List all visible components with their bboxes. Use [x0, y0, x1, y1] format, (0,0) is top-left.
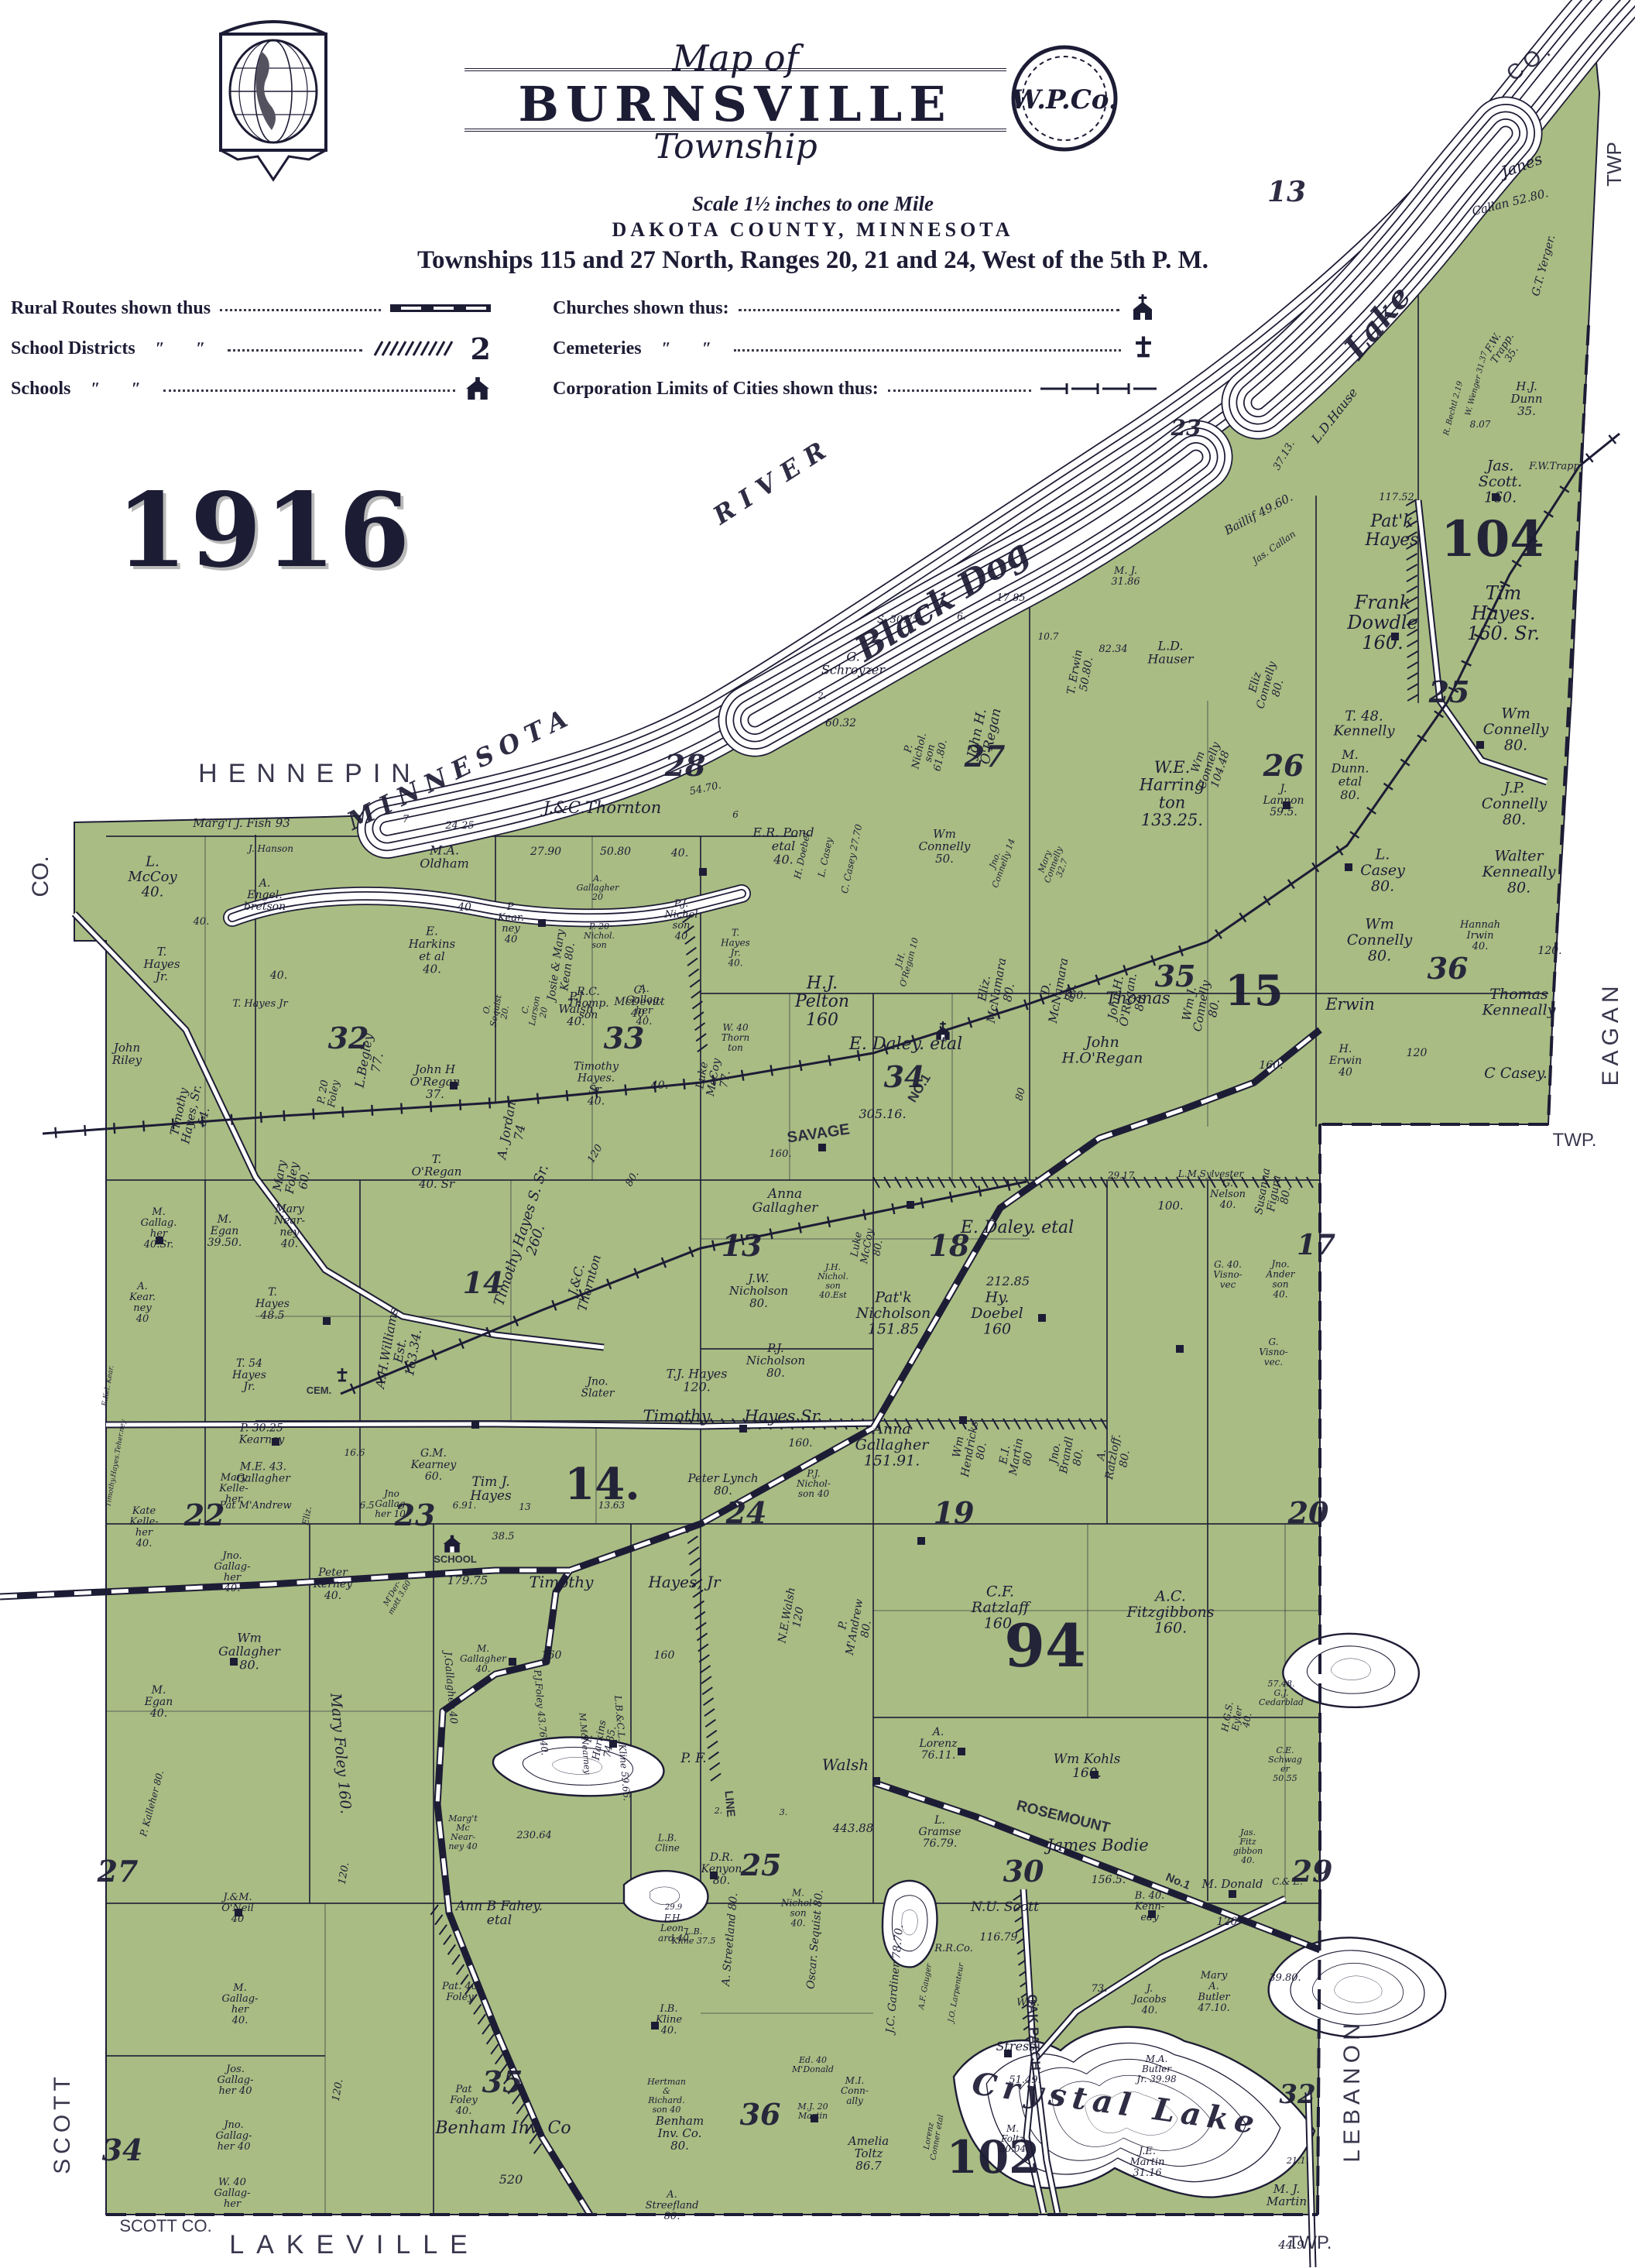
school-district-symbol: 2: [372, 331, 491, 366]
parcel-label: L.M.Sylvester: [1177, 1168, 1245, 1179]
church-symbol: [1129, 294, 1157, 322]
legend-item-cemeteries: Cemeteries ʺ ʺ: [553, 333, 1157, 364]
legend-ditto: ʺ ʺ: [91, 379, 153, 399]
water-label: RIVER: [707, 431, 838, 531]
parcel-label: 156.5.: [1092, 1874, 1126, 1886]
map-year: 1916: [116, 471, 348, 591]
dist-label: 15: [1225, 966, 1283, 1015]
parcel-label: 82.34: [1099, 643, 1127, 655]
parcel-label: 117.52: [1379, 492, 1414, 503]
parcel-label: N.U. Scott: [970, 1899, 1039, 1915]
title-banner: Map of BURNSVILLE Township: [464, 31, 1006, 163]
legend-label: School Districts: [11, 338, 135, 359]
parcel-label: 520: [499, 2172, 523, 2187]
legend-item-corporation-limits: Corporation Limits of Cities shown thus:: [553, 373, 1157, 404]
parcel-label: 40.: [670, 847, 688, 860]
parcel-label: C.& E.: [1272, 1876, 1303, 1887]
parcel-label: Benham Inv. Co: [434, 2119, 571, 2138]
sec-label: 35: [482, 2064, 523, 2099]
parcel-label: 6.5: [359, 1500, 374, 1511]
parcel-label: 230.64: [516, 1830, 552, 1841]
parcel-label: J.&C.Thornton: [540, 798, 662, 817]
sec-label: 17: [1297, 1229, 1335, 1261]
school-symbol: [464, 376, 491, 402]
parcel-label: M. J.31.86: [1111, 565, 1140, 588]
parcel-label: 51.49.: [1009, 2074, 1040, 2086]
parcel-label: 160.: [788, 1437, 812, 1450]
parcel-label: 73.: [1092, 1983, 1108, 1995]
edge-label: EAGAN: [1598, 981, 1623, 1086]
parcel-label: 50.80: [600, 846, 631, 858]
publisher-seal: W.P.Co.: [1006, 40, 1123, 156]
legend-leader: [228, 346, 362, 352]
title-map-of: Map of: [464, 37, 1006, 79]
townships-ranges-note: Townships 115 and 27 North, Ranges 20, 2…: [232, 246, 1393, 275]
parcel-label: P. F.: [680, 1751, 706, 1766]
sec-label: 27: [97, 1854, 139, 1889]
scale-note: Scale 1½ inches to one Mile: [464, 192, 1161, 216]
legend-label: Churches shown thus:: [553, 298, 729, 319]
parcel-label: Timothy: [643, 1407, 711, 1426]
parcel-label: 60.32: [825, 717, 856, 729]
sec-label: 20: [1287, 1495, 1329, 1530]
legend-label: Cemeteries: [553, 338, 642, 359]
parcel-label: Hayes, Jr: [647, 1573, 721, 1591]
legend-leader: [888, 386, 1031, 392]
parcel-label: Hayes Sr: [743, 1407, 821, 1426]
parcel-label: P. 30.25Kearney: [238, 1422, 286, 1446]
parcel-label: 2.: [817, 691, 827, 701]
parcel-label: L.B.Cline: [655, 1833, 680, 1854]
sec-label: 23: [1171, 415, 1201, 441]
parcel-label: 6.91.: [453, 1500, 477, 1511]
parcel-label: ThomasKenneally: [1482, 986, 1556, 1019]
title-township-word: Township: [464, 127, 1006, 166]
parcel-label: 8.07: [1470, 419, 1491, 430]
parcel-label: F.W.Trapp.: [1528, 461, 1583, 472]
dist-label: 102: [946, 2131, 1040, 2184]
sec-label: 25: [740, 1848, 782, 1882]
parcel-label: Pat. 40Foley: [441, 1981, 478, 2003]
parcel-label: Walsh: [822, 1755, 869, 1774]
parcel-label: 179.75: [447, 1573, 488, 1587]
parcel-label: 212.85: [985, 1274, 1030, 1288]
parcel-label: Stress: [996, 2039, 1036, 2054]
legend-item-churches: Churches shown thus:: [553, 293, 1157, 324]
seal-text: W.P.Co.: [1011, 84, 1117, 115]
parcel-label: Pat M'Andrew: [218, 1500, 291, 1511]
parcel-label: M. Donald: [1201, 1877, 1263, 1891]
parcel-label: 21.1.: [1286, 2156, 1308, 2166]
parcel-label: 6.: [957, 611, 965, 622]
parcel-label: 2.: [714, 1806, 723, 1816]
sec-label: 13: [722, 1228, 763, 1263]
parcel-label: 16.6: [344, 1447, 365, 1458]
edge-label: SCOTT CO.: [119, 2216, 211, 2235]
road-label: SCHOOL: [434, 1553, 477, 1565]
parcel-label: Marg'l J. Fish 93: [192, 816, 290, 830]
parcel-label: Marg'tMcNear-ney 40: [447, 1813, 478, 1851]
sec-label: 25: [1428, 674, 1470, 709]
edge-label: CO.: [28, 856, 53, 897]
parcel-label: 160: [541, 1649, 562, 1662]
parcel-label: 3.: [780, 1807, 788, 1817]
sec-label: 26: [1263, 748, 1304, 783]
parcel-label: 17.85.: [996, 592, 1028, 604]
legend-ditto: ʺ ʺ: [156, 338, 218, 359]
legend-item-school-districts: School Districts ʺ ʺ 2: [11, 333, 491, 364]
parcel-label: 24.25: [444, 820, 474, 832]
parcel-label: 160.: [770, 1148, 792, 1160]
legend-leader: [734, 346, 1121, 352]
parcel-label: Thomas: [1105, 989, 1171, 1007]
edge-label: HENNEPIN: [198, 759, 421, 788]
legend-district-number: 2: [471, 331, 491, 366]
parcel-label: 120: [1407, 1047, 1428, 1059]
parcel-label: 40.: [269, 969, 287, 982]
title-township-name: BURNSVILLE: [464, 76, 1006, 132]
parcel-label: 100.: [1157, 1199, 1183, 1213]
parcel-label: 7: [403, 814, 410, 825]
parcel-label: 160.: [1062, 990, 1086, 1002]
parcel-label: J. Hanson: [246, 843, 293, 854]
sec-label: 13: [1267, 176, 1306, 208]
edge-label: TWP.: [1553, 1130, 1597, 1151]
sec-label: 24: [725, 1495, 767, 1530]
parcel-label: 13.63: [598, 1500, 626, 1511]
parcel-label: 6: [732, 809, 739, 820]
legend-label: Schools: [11, 379, 70, 400]
parcel-label: M.J. 20Martin: [797, 2102, 828, 2121]
parcel-label: E. Daley. etal: [960, 1218, 1074, 1237]
parcel-label: E. Daley. etal: [848, 1034, 962, 1054]
legend-leader: [739, 306, 1119, 311]
dist-label: 104: [1441, 510, 1544, 568]
legend-leader: [163, 386, 455, 392]
parcel-label: Timothy: [530, 1573, 595, 1591]
parcel-label: 44.9: [1277, 2238, 1304, 2252]
parcel-label: 10.7: [1038, 631, 1059, 642]
parcel-label: S. 30.75.: [877, 614, 922, 626]
parcel-label: James Bodie: [1044, 1836, 1148, 1855]
sec-label: 34: [884, 1059, 925, 1094]
parcel-label: 120.: [1537, 945, 1561, 957]
parcel-label: 40: [457, 901, 471, 914]
road-label: LINE: [722, 1790, 738, 1818]
edge-label: LAKEVILLE: [229, 2230, 480, 2259]
parcel-label: R.R.Co.: [934, 1943, 973, 1954]
county-note: DAKOTA COUNTY, MINNESOTA: [464, 218, 1161, 242]
corporation-limits-symbol: [1040, 382, 1157, 396]
parcel-label: 40.: [193, 916, 210, 928]
sec-label: 36: [1428, 951, 1469, 986]
plat-map-page: HENNEPINCO.CO.TWPTWP.EAGANLEBANONTWP.SCO…: [0, 0, 1635, 2268]
parcel-label: 305.16.: [859, 1107, 906, 1121]
parcel-label: JohnRiley: [111, 1041, 142, 1067]
edge-label: TWP: [1602, 142, 1626, 187]
parcel-label: 27.90: [530, 846, 561, 858]
parcel-label: 116.79: [980, 1931, 1018, 1944]
parcel-label: 160: [654, 1649, 675, 1662]
sec-label: 34: [102, 2132, 143, 2167]
parcel-label: 40.: [650, 1079, 668, 1092]
legend-ditto: ʺ ʺ: [662, 338, 725, 359]
parcel-label: 38.5: [492, 1531, 515, 1542]
edge-label: LEBANON: [1339, 2019, 1365, 2162]
sec-label: 36: [740, 2097, 781, 2132]
legend-item-schools: Schools ʺ ʺ: [11, 373, 491, 404]
parcel-label: 29.17: [1107, 1170, 1135, 1181]
sec-label: 19: [934, 1495, 975, 1530]
parcel-label: 13: [519, 1501, 531, 1512]
legend-leader: [220, 306, 381, 311]
globe-emblem: [214, 20, 332, 183]
parcel-label: 39.80.: [1269, 1972, 1301, 1984]
parcel-label: MaryA.Butler47.10.: [1197, 1970, 1230, 2014]
legend-label: Rural Routes shown thus: [11, 298, 211, 319]
legend-item-rural-routes: Rural Routes shown thus: [11, 293, 491, 324]
legend-label: Corporation Limits of Cities shown thus:: [553, 379, 879, 400]
parcel-label: 120: [1217, 1916, 1238, 1928]
sec-label: 22: [183, 1498, 225, 1532]
sec-label: 28: [664, 748, 706, 783]
parcel-label: Erwin: [1325, 995, 1375, 1014]
edge-label: SCOTT: [50, 2072, 75, 2174]
parcel-label: Hertman&Richard.son 40: [646, 2077, 686, 2115]
sec-label: 32: [1279, 2079, 1315, 2110]
parcel-label: 160.: [1259, 1059, 1283, 1072]
parcel-label: Wm.: [1016, 1997, 1040, 2009]
sec-label: 30: [1003, 1854, 1044, 1889]
parcel-label: Pat'kHayes: [1364, 512, 1418, 550]
parcel-label: 29.9: [664, 1903, 683, 1912]
road-label: CEM.: [307, 1384, 332, 1396]
rural-route-symbol: [390, 303, 491, 314]
parcel-label: 443.88: [832, 1821, 874, 1835]
parcel-label: T. Hayes Jr: [232, 998, 288, 1010]
cemetery-symbol: [1130, 335, 1157, 362]
parcel-label: C Casey.: [1484, 1065, 1548, 1082]
